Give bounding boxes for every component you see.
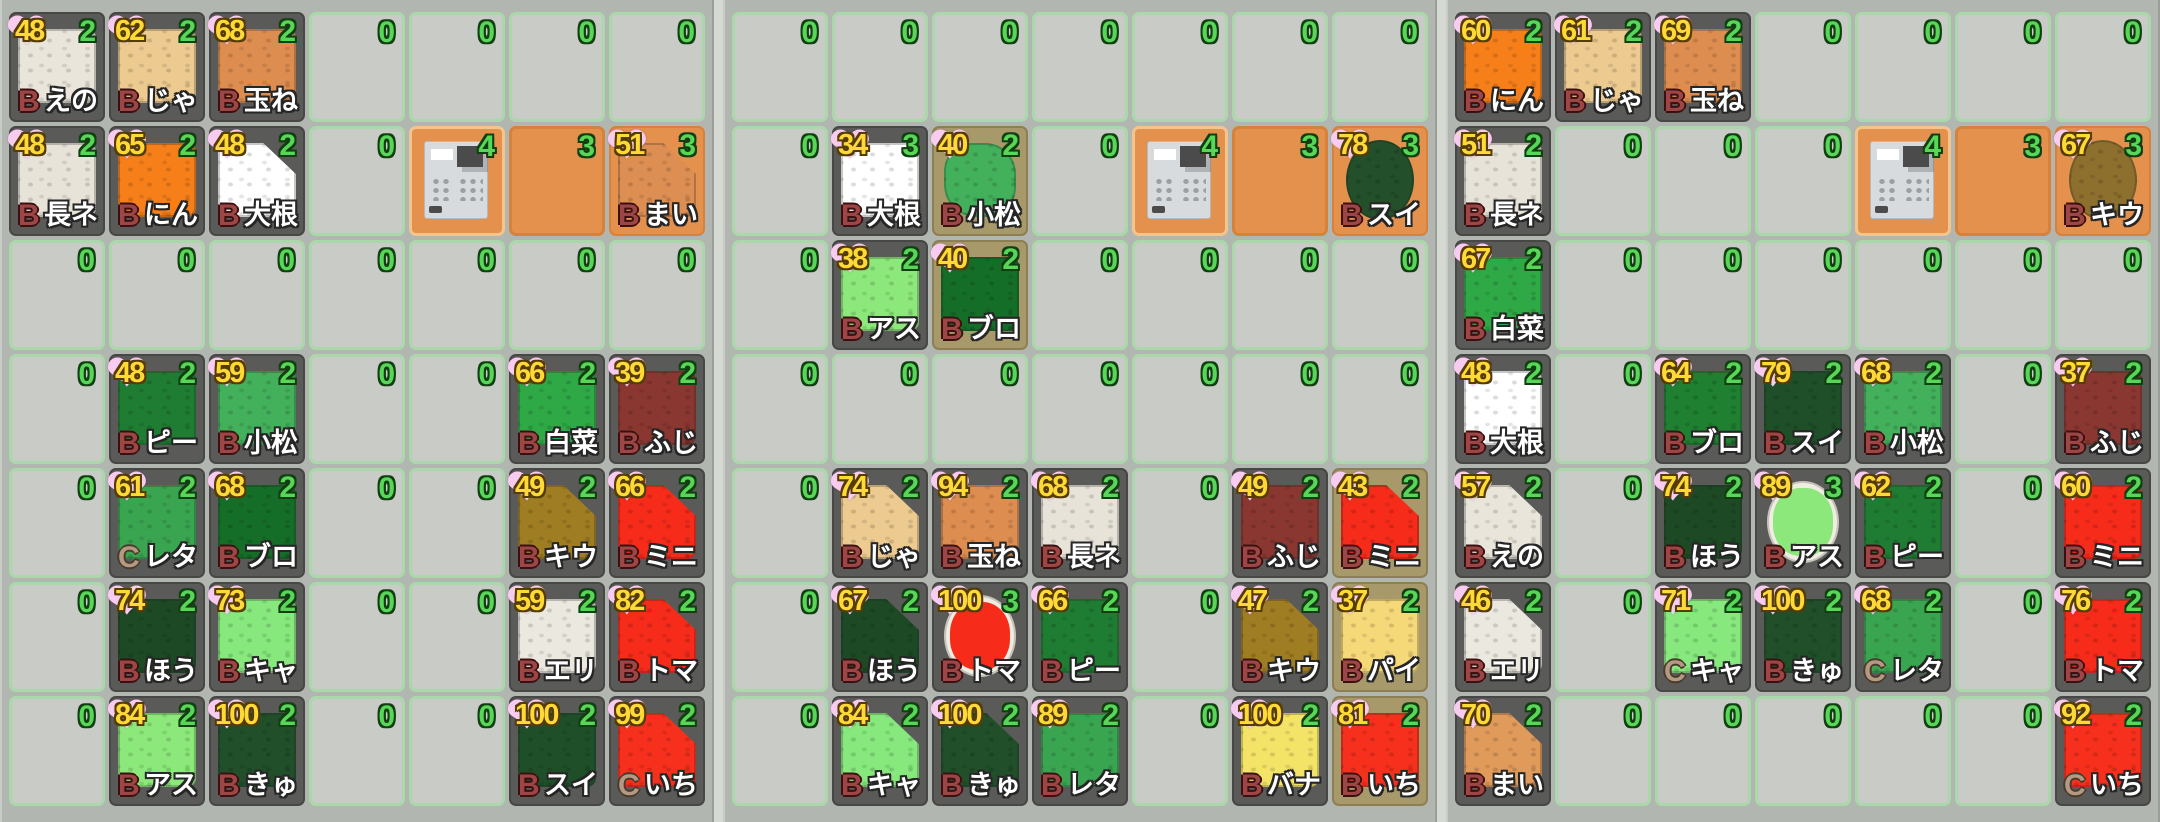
empty-plot-cell[interactable]: 0 <box>309 240 405 350</box>
empty-plot-cell[interactable]: 0 <box>309 582 405 692</box>
stock-count: 0 <box>1624 586 1641 620</box>
grade-letter: B <box>1241 541 1263 575</box>
crop-cell[interactable]: ❤652Bにん <box>109 126 205 236</box>
heart-value: 67 <box>838 585 866 618</box>
empty-plot-cell[interactable]: 0 <box>409 240 505 350</box>
crop-label: きゅ <box>244 763 298 802</box>
heart-value: 59 <box>215 357 243 390</box>
crop-cell[interactable]: ❤672B白菜 <box>1455 240 1551 350</box>
empty-plot-cell[interactable]: 0 <box>409 354 505 464</box>
grade-letter: B <box>941 655 963 689</box>
crop-label: キャ <box>867 763 921 802</box>
empty-plot-cell[interactable]: 0 <box>1855 696 1951 806</box>
crop-cell[interactable]: ❤432Bミニ <box>1332 468 1428 578</box>
empty-plot-cell[interactable]: 0 <box>1332 240 1428 350</box>
stock-count: 0 <box>2024 16 2041 50</box>
stock-count: 0 <box>1101 244 1118 278</box>
stock-count: 0 <box>1824 16 1841 50</box>
heart-value: 94 <box>938 471 966 504</box>
empty-plot-cell[interactable]: 0 <box>732 696 828 806</box>
stock-count: 2 <box>179 129 196 163</box>
stock-count: 0 <box>1824 130 1841 164</box>
empty-plot-cell[interactable]: 0 <box>9 582 105 692</box>
stock-count: 0 <box>1824 244 1841 278</box>
stock-count: 0 <box>1401 358 1418 392</box>
empty-plot-cell[interactable]: 0 <box>1755 240 1851 350</box>
heart-value: 100 <box>938 699 980 732</box>
crop-cell[interactable]: ❤462Bエリ <box>1455 582 1551 692</box>
heart-value: 68 <box>215 15 243 48</box>
crop-cell[interactable]: ❤1002Bきゅ <box>932 696 1028 806</box>
stock-count: 2 <box>579 585 596 619</box>
register-keys2 <box>1904 177 1929 201</box>
stock-count: 2 <box>1625 15 1642 49</box>
crop-cell[interactable]: ❤672Bほう <box>832 582 928 692</box>
crop-cell[interactable]: ❤673Bキウ <box>2055 126 2151 236</box>
empty-plot-cell[interactable]: 0 <box>609 12 705 122</box>
crop-label: ふじ <box>644 421 698 460</box>
empty-plot-cell[interactable]: 0 <box>1955 12 2051 122</box>
grade-letter: C <box>618 769 640 803</box>
crop-cell[interactable]: ❤402B小松 <box>932 126 1028 236</box>
stock-count: 0 <box>378 700 395 734</box>
stock-count: 2 <box>1525 471 1542 505</box>
stock-count: 2 <box>279 471 296 505</box>
stock-count: 0 <box>1301 244 1318 278</box>
crop-cell[interactable]: ❤742Bほう <box>1655 468 1751 578</box>
empty-plot-cell[interactable]: 0 <box>309 354 405 464</box>
crop-cell[interactable]: ❤692B玉ね <box>1655 12 1751 122</box>
crop-label: スイ <box>1790 421 1844 460</box>
stock-count: 2 <box>1002 471 1019 505</box>
crop-cell[interactable]: ❤1002Bきゅ <box>209 696 305 806</box>
crop-label: じゃ <box>867 535 921 574</box>
crop-cell[interactable]: ❤572Bえの <box>1455 468 1551 578</box>
heart-value: 82 <box>615 585 643 618</box>
heart-value: 38 <box>838 243 866 276</box>
crop-label: ブロ <box>244 535 298 574</box>
grade-letter: B <box>1664 427 1686 461</box>
crop-label: キウ <box>544 535 598 574</box>
empty-plot-cell[interactable]: 0 <box>1555 468 1651 578</box>
crop-cell[interactable]: ❤682Cレタ <box>1855 582 1951 692</box>
stock-count: 2 <box>1925 585 1942 619</box>
empty-plot-cell[interactable]: 0 <box>1555 126 1651 236</box>
empty-plot-cell[interactable]: 0 <box>309 12 405 122</box>
crop-cell[interactable]: ❤682B玉ね <box>209 12 305 122</box>
stock-count: 3 <box>2024 130 2041 164</box>
stock-count: 2 <box>679 585 696 619</box>
crop-label: キャ <box>244 649 298 688</box>
crop-cell[interactable]: ❤922Cいち <box>2055 696 2151 806</box>
crop-cell[interactable]: ❤642Bブロ <box>1655 354 1751 464</box>
stock-count: 0 <box>378 130 395 164</box>
crop-cell[interactable]: ❤662B白菜 <box>509 354 605 464</box>
empty-plot-cell[interactable]: 0 <box>1955 696 2051 806</box>
empty-plot-cell[interactable]: 0 <box>1332 354 1428 464</box>
empty-plot-cell[interactable]: 0 <box>732 582 828 692</box>
heart-value: 67 <box>1461 243 1489 276</box>
stock-count: 0 <box>1001 16 1018 50</box>
grade-letter: B <box>218 541 240 575</box>
stock-count: 0 <box>1624 358 1641 392</box>
stock-count: 2 <box>1525 15 1542 49</box>
heart-value: 51 <box>1461 129 1489 162</box>
empty-plot-cell[interactable]: 0 <box>1555 354 1651 464</box>
empty-plot-cell[interactable]: 0 <box>732 468 828 578</box>
crop-cell[interactable]: ❤343B大根 <box>832 126 928 236</box>
heart-value: 99 <box>615 699 643 732</box>
empty-plot-cell[interactable]: 0 <box>1032 12 1128 122</box>
crop-cell[interactable]: ❤482B長ネ <box>9 126 105 236</box>
grade-letter: B <box>841 199 863 233</box>
stock-count: 2 <box>279 357 296 391</box>
shipping-plot-cell[interactable]: 3 <box>509 126 605 236</box>
crop-cell[interactable]: ❤622Bピー <box>1855 468 1951 578</box>
crop-cell[interactable]: ❤1002Bバナ <box>1232 696 1328 806</box>
stock-count: 0 <box>901 16 918 50</box>
crop-cell[interactable]: ❤482Bピー <box>109 354 205 464</box>
stock-count: 0 <box>801 244 818 278</box>
crop-cell[interactable]: ❤682B小松 <box>1855 354 1951 464</box>
empty-plot-cell[interactable]: 0 <box>309 468 405 578</box>
stock-count: 2 <box>179 471 196 505</box>
crop-label: バナ <box>1267 763 1321 802</box>
crop-label: レタ <box>1890 649 1944 688</box>
stock-count: 2 <box>902 699 919 733</box>
empty-plot-cell[interactable]: 0 <box>409 12 505 122</box>
crop-cell[interactable]: ❤602Bにん <box>1455 12 1551 122</box>
crop-label: スイ <box>544 763 598 802</box>
empty-plot-cell[interactable]: 0 <box>1132 582 1228 692</box>
crop-cell[interactable]: ❤1002Bスイ <box>509 696 605 806</box>
register-slip <box>1877 149 1899 160</box>
empty-plot-cell[interactable]: 0 <box>1855 12 1951 122</box>
empty-plot-cell[interactable]: 0 <box>609 240 705 350</box>
heart-value: 49 <box>1238 471 1266 504</box>
field-left: ❤482Bえの❤622Bじゃ❤682B玉ね0000❤482B長ネ❤652Bにん❤… <box>0 0 714 822</box>
stock-count: 2 <box>279 15 296 49</box>
stock-count: 0 <box>1201 16 1218 50</box>
empty-plot-cell[interactable]: 0 <box>9 240 105 350</box>
stock-count: 2 <box>1525 585 1542 619</box>
register-btn <box>1152 206 1164 213</box>
crop-cell[interactable]: ❤742Bほう <box>109 582 205 692</box>
heart-value: 43 <box>1338 471 1366 504</box>
stock-count: 0 <box>1924 244 1941 278</box>
grade-letter: B <box>618 541 640 575</box>
stock-count: 2 <box>902 585 919 619</box>
stock-count: 2 <box>1525 243 1542 277</box>
grade-letter: B <box>518 427 540 461</box>
stock-count: 0 <box>801 700 818 734</box>
crop-cell[interactable]: ❤942B玉ね <box>932 468 1028 578</box>
empty-plot-cell[interactable]: 0 <box>1132 12 1228 122</box>
crop-cell[interactable]: ❤482B大根 <box>1455 354 1551 464</box>
stock-count: 0 <box>78 472 95 506</box>
empty-plot-cell[interactable]: 0 <box>1032 126 1128 236</box>
stock-count: 0 <box>478 472 495 506</box>
empty-plot-cell[interactable]: 0 <box>1132 468 1228 578</box>
stock-count: 2 <box>1102 471 1119 505</box>
empty-plot-cell[interactable]: 0 <box>932 354 1028 464</box>
crop-cell[interactable]: ❤842Bキャ <box>832 696 928 806</box>
heart-value: 48 <box>15 15 43 48</box>
empty-plot-cell[interactable]: 0 <box>2055 240 2151 350</box>
empty-plot-cell[interactable]: 0 <box>9 696 105 806</box>
heart-value: 64 <box>1661 357 1689 390</box>
crop-cell[interactable]: ❤482Bえの <box>9 12 105 122</box>
stock-count: 0 <box>2024 472 2041 506</box>
field-center: 00000000❤343B大根❤402B小松043❤783Bスイ0❤382Bアス… <box>723 0 1437 822</box>
crop-cell[interactable]: ❤602Bミニ <box>2055 468 2151 578</box>
register-slip <box>431 149 453 160</box>
empty-plot-cell[interactable]: 0 <box>1955 582 2051 692</box>
stock-count: 0 <box>801 16 818 50</box>
crop-cell[interactable]: ❤662Bミニ <box>609 468 705 578</box>
empty-plot-cell[interactable]: 0 <box>9 354 105 464</box>
empty-plot-cell[interactable]: 0 <box>1755 126 1851 236</box>
grade-letter: B <box>2064 655 2086 689</box>
empty-plot-cell[interactable]: 0 <box>1555 582 1651 692</box>
crop-cell[interactable]: ❤472Bキウ <box>1232 582 1328 692</box>
crop-cell[interactable]: ❤512B長ネ <box>1455 126 1551 236</box>
heart-value: 81 <box>1338 699 1366 732</box>
stock-count: 2 <box>2125 357 2142 391</box>
stock-count: 0 <box>1301 358 1318 392</box>
crop-cell[interactable]: ❤702Bまい <box>1455 696 1551 806</box>
crop-cell[interactable]: ❤822Bトマ <box>609 582 705 692</box>
stock-count: 2 <box>1302 585 1319 619</box>
crop-cell[interactable]: ❤992Cいち <box>609 696 705 806</box>
crop-cell[interactable]: ❤513Bまい <box>609 126 705 236</box>
empty-plot-cell[interactable]: 0 <box>1232 12 1328 122</box>
empty-plot-cell[interactable]: 0 <box>932 12 1028 122</box>
grade-letter: B <box>841 313 863 347</box>
stock-count: 3 <box>1301 130 1318 164</box>
stock-count: 0 <box>801 586 818 620</box>
empty-plot-cell[interactable]: 0 <box>1332 12 1428 122</box>
crop-cell[interactable]: ❤892Bレタ <box>1032 696 1128 806</box>
crop-cell[interactable]: ❤682B長ネ <box>1032 468 1128 578</box>
grade-letter: B <box>218 199 240 233</box>
stock-count: 0 <box>378 472 395 506</box>
crop-cell[interactable]: ❤402Bブロ <box>932 240 1028 350</box>
grade-letter: B <box>118 655 140 689</box>
heart-value: 89 <box>1761 471 1789 504</box>
grade-letter: B <box>1341 199 1363 233</box>
grade-letter: C <box>118 541 140 575</box>
crop-cell[interactable]: ❤842Bアス <box>109 696 205 806</box>
crop-cell[interactable]: ❤762Bトマ <box>2055 582 2151 692</box>
crop-cell[interactable]: ❤622Bじゃ <box>109 12 205 122</box>
stock-count: 2 <box>1725 357 1742 391</box>
stock-count: 0 <box>1624 700 1641 734</box>
crop-cell[interactable]: ❤893Bアス <box>1755 468 1851 578</box>
grade-letter: B <box>941 199 963 233</box>
empty-plot-cell[interactable]: 0 <box>832 354 928 464</box>
crop-label: 白菜 <box>1490 307 1544 346</box>
crop-cell[interactable]: ❤612Cレタ <box>109 468 205 578</box>
heart-value: 39 <box>615 357 643 390</box>
empty-plot-cell[interactable]: 0 <box>9 468 105 578</box>
heart-value: 34 <box>838 129 866 162</box>
grade-letter: B <box>1764 655 1786 689</box>
crop-cell[interactable]: ❤783Bスイ <box>1332 126 1428 236</box>
register-cell[interactable]: 4 <box>409 126 505 236</box>
crop-cell[interactable]: ❤742Bじゃ <box>832 468 928 578</box>
grade-letter: B <box>1864 427 1886 461</box>
grade-letter: B <box>941 313 963 347</box>
heart-value: 51 <box>615 129 643 162</box>
empty-plot-cell[interactable]: 0 <box>1655 240 1751 350</box>
stock-count: 0 <box>1624 244 1641 278</box>
empty-plot-cell[interactable]: 0 <box>732 240 828 350</box>
stock-count: 0 <box>1001 358 1018 392</box>
crop-label: エリ <box>1490 649 1544 688</box>
register-cell[interactable]: 4 <box>1855 126 1951 236</box>
crop-label: レタ <box>144 535 198 574</box>
stock-count: 3 <box>1002 585 1019 619</box>
grade-letter: B <box>1664 541 1686 575</box>
empty-plot-cell[interactable]: 0 <box>409 582 505 692</box>
heart-value: 73 <box>215 585 243 618</box>
empty-plot-cell[interactable]: 0 <box>1132 696 1228 806</box>
crop-cell[interactable]: ❤612Bじゃ <box>1555 12 1651 122</box>
empty-plot-cell[interactable]: 0 <box>732 354 828 464</box>
empty-plot-cell[interactable]: 0 <box>209 240 305 350</box>
empty-plot-cell[interactable]: 0 <box>1955 240 2051 350</box>
stock-count: 2 <box>1002 129 1019 163</box>
heart-value: 89 <box>1038 699 1066 732</box>
crop-label: にん <box>144 193 198 232</box>
empty-plot-cell[interactable]: 0 <box>309 696 405 806</box>
crop-cell[interactable]: ❤682Bブロ <box>209 468 305 578</box>
stock-count: 4 <box>478 130 495 164</box>
grade-letter: B <box>18 199 40 233</box>
register-cell[interactable]: 4 <box>1132 126 1228 236</box>
crop-label: パイ <box>1367 649 1421 688</box>
empty-plot-cell[interactable]: 0 <box>1032 240 1128 350</box>
empty-plot-cell[interactable]: 0 <box>1232 354 1328 464</box>
stock-count: 2 <box>1402 471 1419 505</box>
crop-cell[interactable]: ❤392Bふじ <box>609 354 705 464</box>
crop-cell[interactable]: ❤492Bキウ <box>509 468 605 578</box>
stock-count: 2 <box>1402 585 1419 619</box>
empty-plot-cell[interactable]: 0 <box>1232 240 1328 350</box>
empty-plot-cell[interactable]: 0 <box>509 12 605 122</box>
crop-cell[interactable]: ❤792Bスイ <box>1755 354 1851 464</box>
heart-value: 68 <box>1861 357 1889 390</box>
stock-count: 2 <box>279 585 296 619</box>
stock-count: 0 <box>1101 130 1118 164</box>
crop-cell[interactable]: ❤1002Bきゅ <box>1755 582 1851 692</box>
empty-plot-cell[interactable]: 0 <box>1955 354 2051 464</box>
grade-letter: B <box>518 655 540 689</box>
empty-plot-cell[interactable]: 0 <box>1955 468 2051 578</box>
shipping-plot-cell[interactable]: 3 <box>1232 126 1328 236</box>
empty-plot-cell[interactable]: 0 <box>1032 354 1128 464</box>
register-keys2 <box>1181 177 1206 201</box>
grade-letter: B <box>2064 199 2086 233</box>
grade-letter: B <box>841 655 863 689</box>
empty-plot-cell[interactable]: 0 <box>1655 126 1751 236</box>
crop-label: キウ <box>1267 649 1321 688</box>
crop-cell[interactable]: ❤662Bピー <box>1032 582 1128 692</box>
crop-label: 大根 <box>244 193 298 232</box>
empty-plot-cell[interactable]: 0 <box>1855 240 1951 350</box>
empty-plot-cell[interactable]: 0 <box>1555 240 1651 350</box>
stock-count: 0 <box>1201 472 1218 506</box>
grade-letter: B <box>1341 541 1363 575</box>
crop-cell[interactable]: ❤1003Bトマ <box>932 582 1028 692</box>
crop-cell[interactable]: ❤592Bエリ <box>509 582 605 692</box>
empty-plot-cell[interactable]: 0 <box>1132 240 1228 350</box>
empty-plot-cell[interactable]: 0 <box>109 240 205 350</box>
grade-letter: B <box>218 769 240 803</box>
stock-count: 2 <box>179 585 196 619</box>
heart-value: 69 <box>1661 15 1689 48</box>
empty-plot-cell[interactable]: 0 <box>2055 12 2151 122</box>
crop-cell[interactable]: ❤372Bパイ <box>1332 582 1428 692</box>
crop-cell[interactable]: ❤482B大根 <box>209 126 305 236</box>
heart-value: 79 <box>1761 357 1789 390</box>
grade-letter: B <box>218 427 240 461</box>
stock-count: 0 <box>901 358 918 392</box>
crop-cell[interactable]: ❤492Bふじ <box>1232 468 1328 578</box>
shipping-plot-cell[interactable]: 3 <box>1955 126 2051 236</box>
heart-value: 61 <box>115 471 143 504</box>
stock-count: 2 <box>179 357 196 391</box>
empty-plot-cell[interactable]: 0 <box>309 126 405 236</box>
empty-plot-cell[interactable]: 0 <box>1655 696 1751 806</box>
empty-plot-cell[interactable]: 0 <box>409 468 505 578</box>
stock-count: 4 <box>1201 130 1218 164</box>
stock-count: 2 <box>1925 357 1942 391</box>
crop-label: ブロ <box>967 307 1021 346</box>
crop-cell[interactable]: ❤592B小松 <box>209 354 305 464</box>
empty-plot-cell[interactable]: 0 <box>1132 354 1228 464</box>
empty-plot-cell[interactable]: 0 <box>509 240 605 350</box>
crop-cell[interactable]: ❤712Cキャ <box>1655 582 1751 692</box>
heart-value: 84 <box>115 699 143 732</box>
grade-letter: C <box>2064 769 2086 803</box>
stock-count: 0 <box>801 358 818 392</box>
crop-cell[interactable]: ❤382Bアス <box>832 240 928 350</box>
empty-plot-cell[interactable]: 0 <box>732 126 828 236</box>
crop-label: 玉ね <box>967 535 1021 574</box>
crop-cell[interactable]: ❤732Bキャ <box>209 582 305 692</box>
register-keys1 <box>1877 177 1896 201</box>
grade-letter: B <box>1464 85 1486 119</box>
stock-count: 2 <box>1102 699 1119 733</box>
empty-plot-cell[interactable]: 0 <box>832 12 928 122</box>
stock-count: 0 <box>678 16 695 50</box>
stock-count: 0 <box>278 244 295 278</box>
heart-value: 46 <box>1461 585 1489 618</box>
crop-cell[interactable]: ❤812Bいち <box>1332 696 1428 806</box>
register-keys2 <box>458 177 483 201</box>
stock-count: 0 <box>478 358 495 392</box>
empty-plot-cell[interactable]: 0 <box>732 12 828 122</box>
empty-plot-cell[interactable]: 0 <box>1755 696 1851 806</box>
empty-plot-cell[interactable]: 0 <box>409 696 505 806</box>
stock-count: 3 <box>1402 129 1419 163</box>
crop-cell[interactable]: ❤372Bふじ <box>2055 354 2151 464</box>
empty-plot-cell[interactable]: 0 <box>1555 696 1651 806</box>
empty-plot-cell[interactable]: 0 <box>1755 12 1851 122</box>
grade-letter: B <box>1041 769 1063 803</box>
